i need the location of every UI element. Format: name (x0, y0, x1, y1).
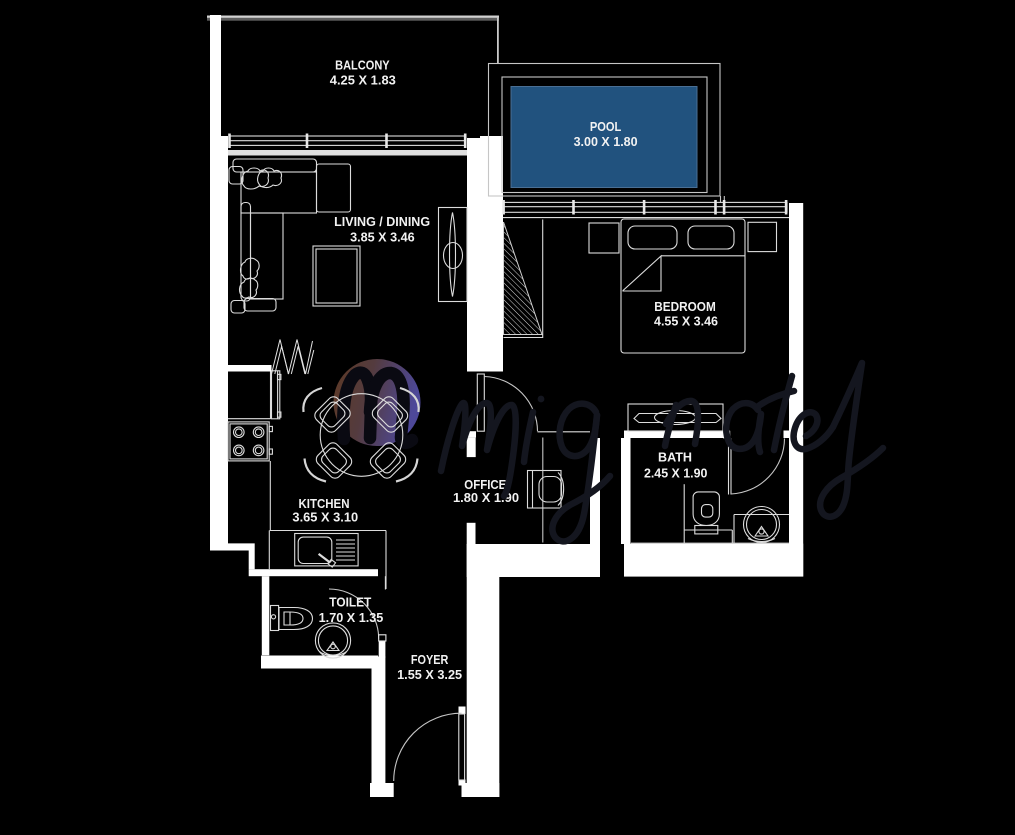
svg-text:LIVING / DINING: LIVING / DINING (334, 214, 430, 229)
svg-text:TOILET: TOILET (329, 594, 371, 609)
svg-text:1.55 X 3.25: 1.55 X 3.25 (397, 667, 462, 682)
svg-text:3.00 X 1.80: 3.00 X 1.80 (574, 134, 638, 149)
svg-text:2.45 X 1.90: 2.45 X 1.90 (644, 465, 708, 480)
svg-text:3.65 X 3.10: 3.65 X 3.10 (292, 510, 358, 525)
svg-text:4.25 X 1.83: 4.25 X 1.83 (330, 72, 396, 87)
svg-text:BALCONY: BALCONY (335, 57, 390, 72)
svg-text:1.70 X 1.35: 1.70 X 1.35 (319, 610, 384, 625)
svg-text:BEDROOM: BEDROOM (654, 299, 716, 314)
svg-text:FOYER: FOYER (411, 652, 449, 667)
svg-text:POOL: POOL (590, 119, 622, 134)
svg-text:4.55 X 3.46: 4.55 X 3.46 (654, 313, 718, 328)
svg-text:BATH: BATH (658, 450, 692, 465)
svg-text:3.85 X 3.46: 3.85 X 3.46 (350, 230, 415, 245)
